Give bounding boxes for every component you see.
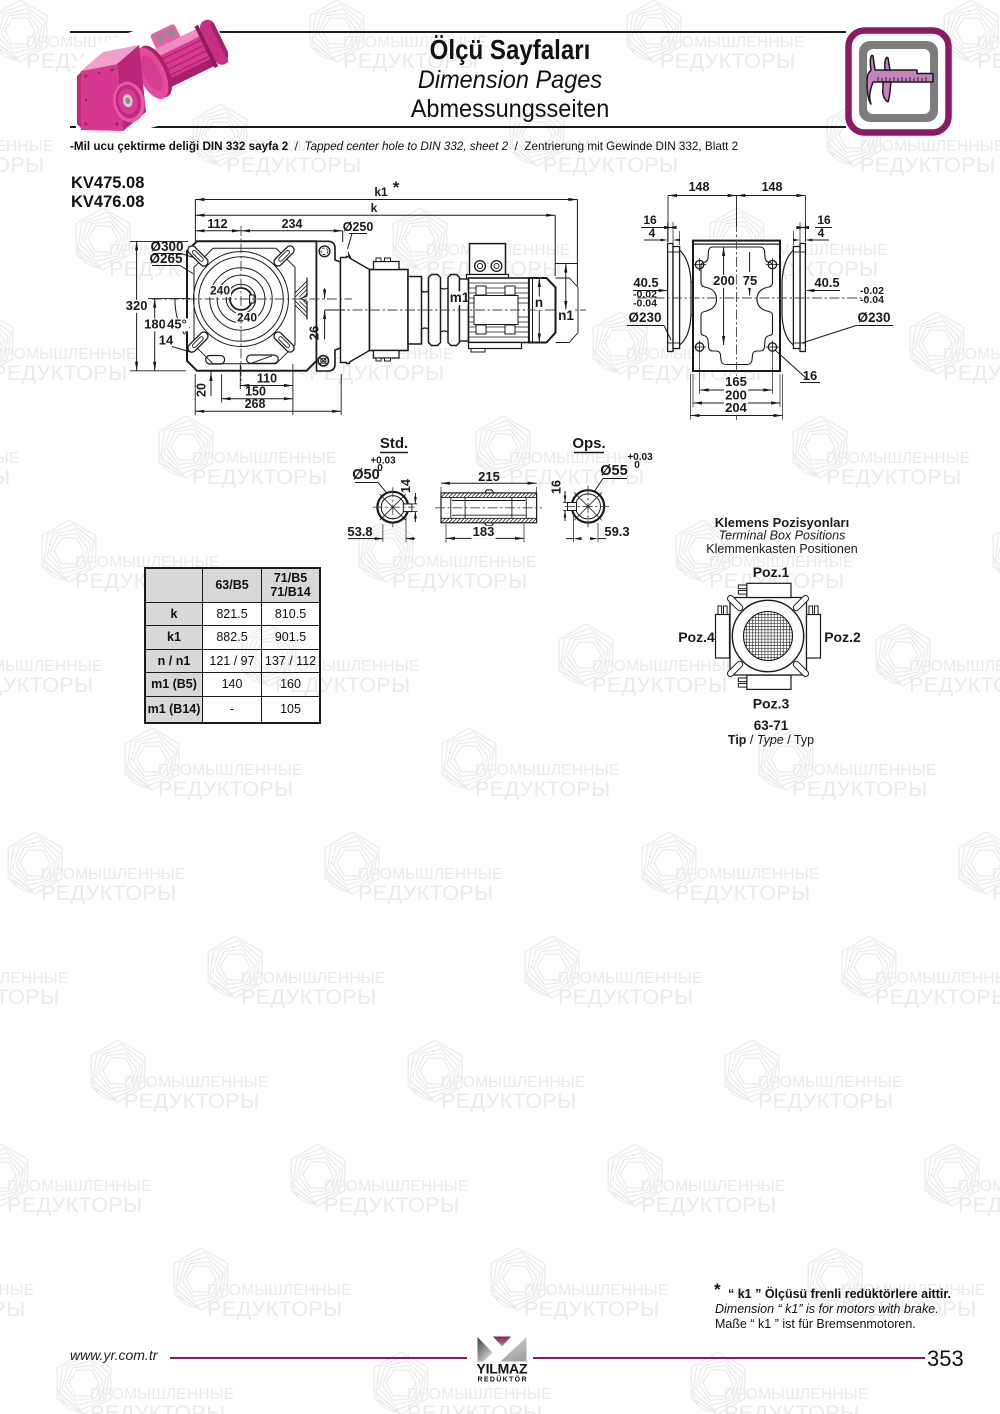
svg-text:-0.04: -0.04: [860, 294, 884, 306]
svg-text:63-71: 63-71: [754, 718, 789, 733]
svg-text:4: 4: [818, 226, 825, 240]
svg-text:Poz.4: Poz.4: [678, 629, 715, 645]
svg-text:53.8: 53.8: [347, 524, 372, 539]
svg-text:Poz.3: Poz.3: [753, 696, 790, 712]
svg-text:*: *: [393, 178, 400, 197]
svg-text:40.5: 40.5: [814, 275, 839, 290]
svg-text:Klemmenkasten Positionen: Klemmenkasten Positionen: [706, 542, 858, 556]
svg-text:Tip / Type / Typ: Tip / Type / Typ: [728, 733, 814, 747]
svg-text:Ø55: Ø55: [600, 463, 627, 479]
svg-text:n: n: [535, 295, 543, 310]
svg-text:200: 200: [713, 273, 735, 288]
svg-text:Std.: Std.: [380, 435, 408, 452]
svg-text:148: 148: [689, 180, 710, 194]
svg-text:+0.03: +0.03: [370, 456, 396, 467]
svg-text:Ø265: Ø265: [149, 251, 183, 266]
svg-text:0: 0: [634, 460, 640, 471]
svg-text:180: 180: [144, 317, 166, 332]
svg-text:183: 183: [473, 524, 495, 539]
svg-text:20: 20: [195, 383, 209, 397]
svg-text:16: 16: [550, 480, 564, 494]
svg-text:k: k: [371, 201, 378, 215]
svg-text:268: 268: [245, 397, 266, 411]
svg-text:14: 14: [159, 333, 174, 348]
svg-text:YILMAZ: YILMAZ: [477, 1361, 528, 1377]
svg-text:110: 110: [257, 372, 277, 386]
svg-text:+0.03: +0.03: [627, 452, 653, 463]
svg-text:Terminal Box Positions: Terminal Box Positions: [719, 529, 846, 543]
svg-text:215: 215: [478, 469, 500, 484]
svg-text:0: 0: [377, 463, 383, 474]
svg-text:n1: n1: [558, 308, 574, 323]
svg-text:240: 240: [237, 311, 257, 325]
svg-text:Ø230: Ø230: [857, 310, 890, 325]
svg-text:Poz.2: Poz.2: [824, 629, 861, 645]
svg-text:m1: m1: [450, 290, 470, 305]
svg-text:234: 234: [282, 217, 303, 231]
svg-text:REDÜKTÖR: REDÜKTÖR: [478, 1375, 527, 1384]
svg-text:Ø50: Ø50: [352, 467, 379, 483]
svg-text:148: 148: [762, 180, 783, 194]
svg-text:16: 16: [817, 213, 831, 227]
svg-text:k1: k1: [374, 185, 388, 199]
svg-text:-0.04: -0.04: [633, 298, 657, 310]
svg-text:Ø230: Ø230: [628, 310, 661, 325]
svg-text:75: 75: [743, 273, 757, 288]
svg-text:26: 26: [307, 326, 322, 340]
svg-text:204: 204: [725, 400, 747, 415]
svg-text:16: 16: [643, 213, 657, 227]
svg-text:45°: 45°: [167, 317, 187, 332]
svg-text:14: 14: [399, 479, 413, 493]
svg-text:112: 112: [207, 217, 227, 231]
svg-text:Poz.1: Poz.1: [753, 564, 790, 580]
svg-text:4: 4: [649, 226, 656, 240]
svg-text:240: 240: [210, 284, 230, 298]
svg-text:Ø250: Ø250: [343, 220, 374, 234]
svg-text:320: 320: [126, 298, 148, 313]
svg-text:59.3: 59.3: [604, 524, 629, 539]
svg-text:16: 16: [803, 368, 817, 383]
svg-text:Ops.: Ops.: [572, 435, 605, 452]
